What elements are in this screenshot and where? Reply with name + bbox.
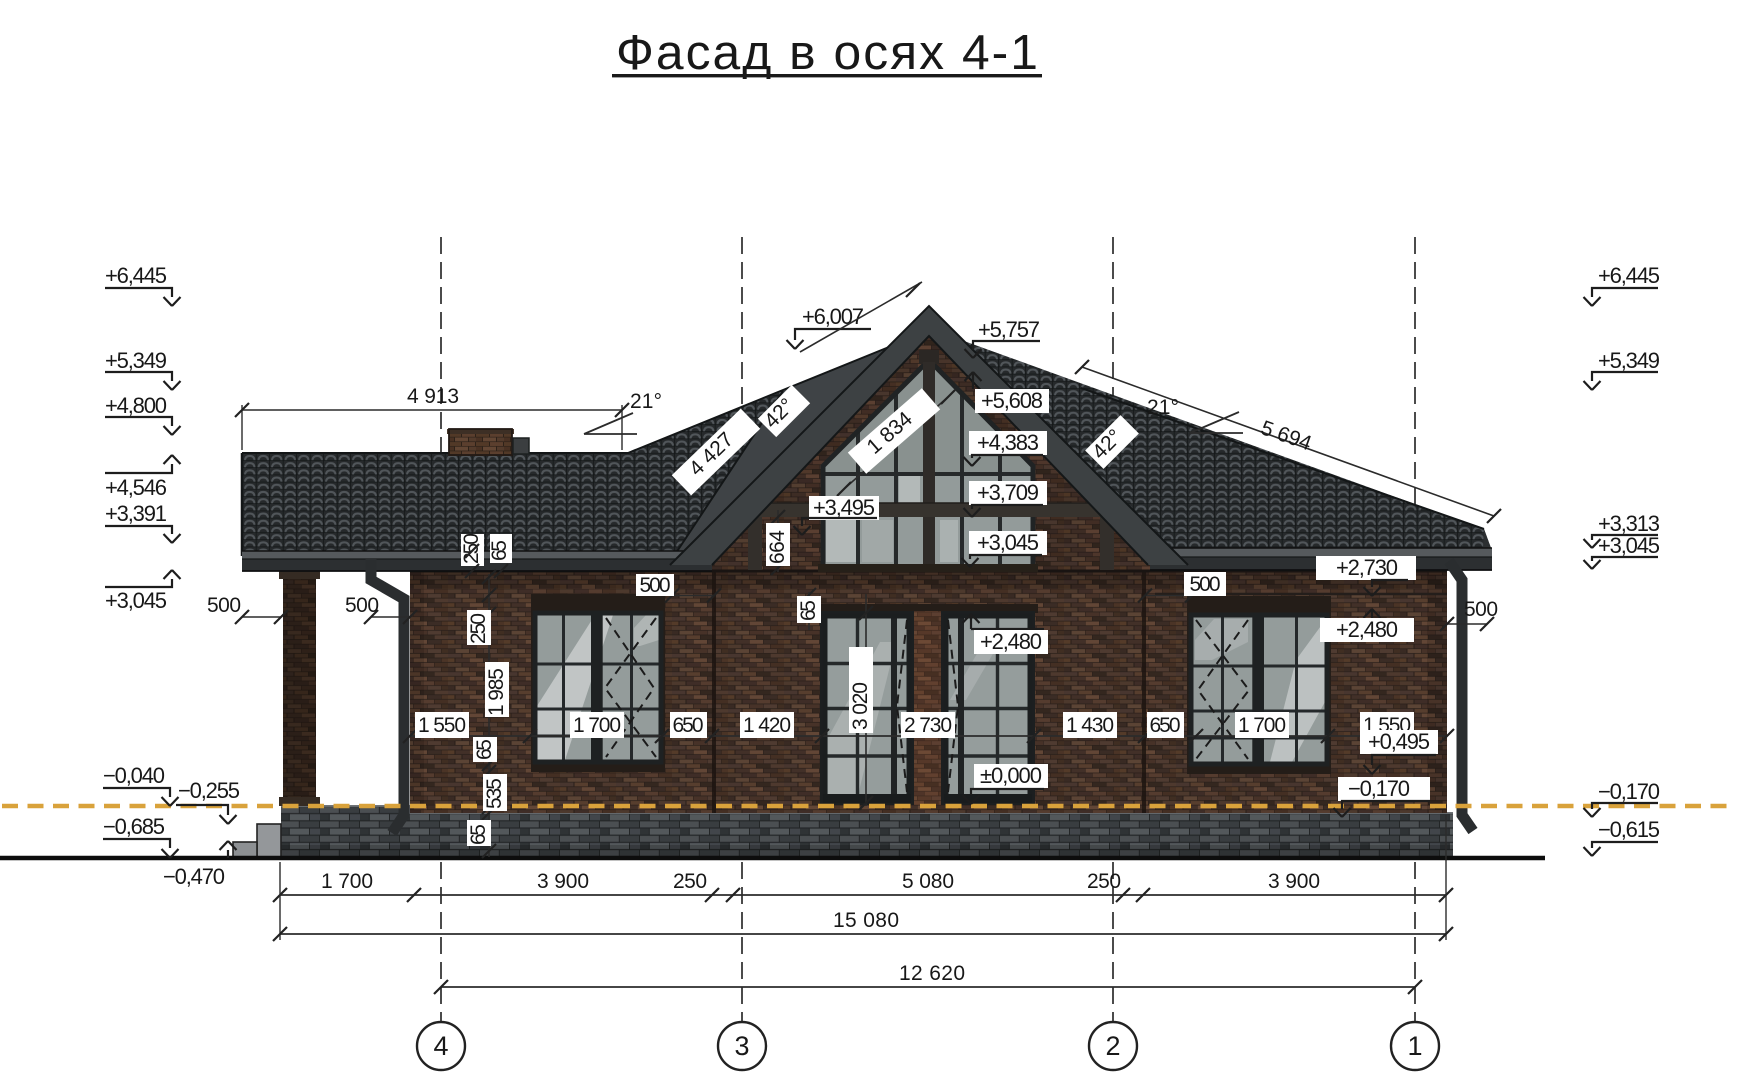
svg-text:+5,349: +5,349 <box>105 348 167 373</box>
svg-text:250: 250 <box>460 533 483 564</box>
svg-text:+6,445: +6,445 <box>1598 263 1660 288</box>
svg-text:1 420: 1 420 <box>743 714 791 737</box>
svg-text:500: 500 <box>345 594 379 617</box>
svg-text:Фасад в осях 4-1: Фасад в осях 4-1 <box>616 26 1040 80</box>
svg-text:2 730: 2 730 <box>904 714 952 737</box>
svg-text:+3,045: +3,045 <box>105 588 167 613</box>
svg-text:1 700: 1 700 <box>1238 714 1286 737</box>
svg-text:1: 1 <box>1407 1031 1422 1061</box>
svg-text:4 913: 4 913 <box>407 385 459 408</box>
svg-text:15 080: 15 080 <box>833 909 899 932</box>
svg-text:+6,445: +6,445 <box>105 263 167 288</box>
svg-text:1 550: 1 550 <box>418 714 466 737</box>
svg-text:1 700: 1 700 <box>321 870 373 893</box>
svg-text:+4,383: +4,383 <box>977 430 1039 455</box>
svg-text:−0,040: −0,040 <box>103 763 165 788</box>
svg-text:65: 65 <box>473 739 496 760</box>
svg-text:+6,007: +6,007 <box>802 304 864 329</box>
svg-text:2: 2 <box>1105 1031 1120 1061</box>
svg-text:65: 65 <box>797 600 820 621</box>
svg-text:500: 500 <box>1190 573 1221 596</box>
svg-text:+4,546: +4,546 <box>105 475 167 500</box>
svg-text:650: 650 <box>673 714 704 737</box>
svg-text:+2,480: +2,480 <box>980 629 1042 654</box>
svg-text:65: 65 <box>467 824 490 845</box>
svg-text:+3,045: +3,045 <box>977 530 1039 555</box>
svg-text:+5,608: +5,608 <box>981 388 1043 413</box>
svg-text:±0,000: ±0,000 <box>980 763 1042 788</box>
svg-text:−0,470: −0,470 <box>163 864 225 889</box>
svg-text:4: 4 <box>433 1031 448 1061</box>
svg-text:250: 250 <box>673 870 707 893</box>
svg-text:500: 500 <box>640 574 671 597</box>
svg-text:3 900: 3 900 <box>1268 870 1320 893</box>
svg-text:+4,800: +4,800 <box>105 393 167 418</box>
svg-text:1 985: 1 985 <box>485 668 508 716</box>
svg-text:250: 250 <box>1087 870 1121 893</box>
svg-text:650: 650 <box>1150 714 1181 737</box>
svg-text:500: 500 <box>1464 598 1498 621</box>
svg-text:+3,391: +3,391 <box>105 501 167 526</box>
svg-text:21°: 21° <box>1147 396 1179 419</box>
svg-text:−0,255: −0,255 <box>178 778 240 803</box>
svg-text:+5,757: +5,757 <box>978 317 1040 342</box>
svg-text:+3,709: +3,709 <box>977 480 1039 505</box>
svg-text:65: 65 <box>488 540 511 561</box>
svg-text:−0,170: −0,170 <box>1348 776 1410 801</box>
svg-text:5 080: 5 080 <box>902 870 954 893</box>
svg-text:+3,045: +3,045 <box>1598 533 1660 558</box>
svg-text:250: 250 <box>467 613 490 644</box>
svg-text:−0,170: −0,170 <box>1598 779 1660 804</box>
svg-text:1 430: 1 430 <box>1066 714 1114 737</box>
svg-text:3 900: 3 900 <box>537 870 589 893</box>
svg-text:+5,349: +5,349 <box>1598 348 1660 373</box>
svg-text:+0,495: +0,495 <box>1368 729 1430 754</box>
svg-text:3 020: 3 020 <box>849 682 872 730</box>
svg-text:+2,480: +2,480 <box>1336 617 1398 642</box>
svg-text:+3,495: +3,495 <box>813 495 875 520</box>
svg-text:21°: 21° <box>630 390 662 413</box>
svg-text:3: 3 <box>734 1031 749 1061</box>
svg-text:535: 535 <box>483 778 506 809</box>
svg-text:12 620: 12 620 <box>899 962 965 985</box>
svg-text:−0,685: −0,685 <box>103 814 165 839</box>
svg-text:500: 500 <box>207 594 241 617</box>
svg-text:664: 664 <box>766 530 789 564</box>
svg-text:1 700: 1 700 <box>573 714 621 737</box>
svg-text:+2,730: +2,730 <box>1336 555 1398 580</box>
svg-text:−0,615: −0,615 <box>1598 817 1660 842</box>
